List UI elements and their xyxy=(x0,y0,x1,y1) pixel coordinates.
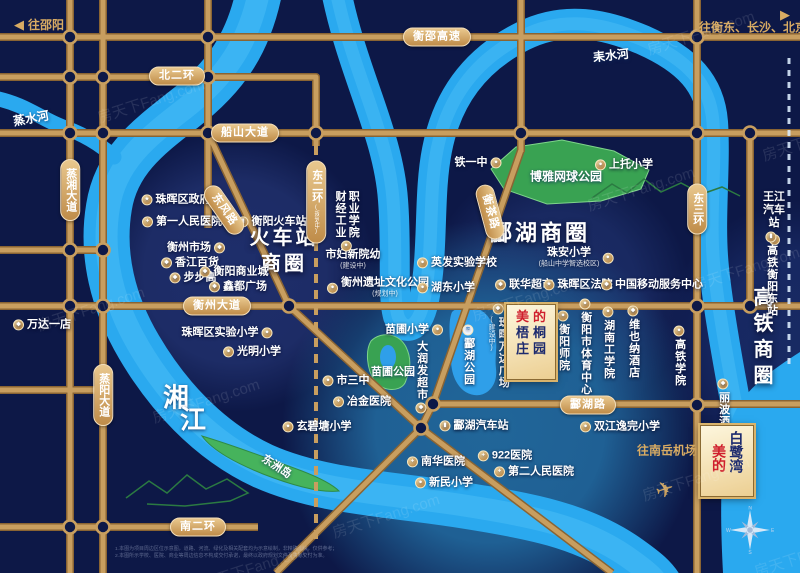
poi-label: ▮高铁衡阳东站 xyxy=(764,232,777,317)
poi-label: +南华医院 xyxy=(407,455,465,468)
road-intersection-icon xyxy=(64,300,77,313)
school-icon: ● xyxy=(417,258,428,269)
park-icon: ● xyxy=(327,282,338,293)
poi-label: ●市三中 xyxy=(323,374,370,387)
project-label-box: 美的梧桐庄园 xyxy=(506,304,556,380)
road-intersection-icon xyxy=(97,71,110,84)
school-icon: ● xyxy=(603,307,614,318)
road-intersection-icon xyxy=(97,244,110,257)
government-icon: ★ xyxy=(142,195,153,206)
road-intersection-icon xyxy=(64,71,77,84)
business-circle-title: 酃湖商圈 xyxy=(490,220,590,249)
school-icon: ● xyxy=(417,283,428,294)
office-icon: ◆ xyxy=(601,280,612,291)
poi-label: +第一人民医院 xyxy=(142,215,222,228)
stadium-icon: ● xyxy=(580,299,591,310)
school-icon: ● xyxy=(558,311,569,322)
shopping-icon: ◆ xyxy=(161,258,172,269)
hospital-icon: + xyxy=(407,457,418,468)
poi-label: ◆鑫都广场 xyxy=(209,280,267,293)
road-intersection-icon xyxy=(64,521,77,534)
poi-label: ●光明小学 xyxy=(223,345,281,358)
poi-label: 铁一中● xyxy=(455,156,502,169)
school-icon: ● xyxy=(262,328,273,339)
poi-label: ◆万达一店 xyxy=(13,318,71,331)
hospital-icon: + xyxy=(478,451,489,462)
road-label-pill: 衡邵高速 xyxy=(403,28,471,47)
poi-label: ●湖南工学院 xyxy=(601,307,614,380)
shopping-icon: ◆ xyxy=(200,267,211,278)
svg-text:S: S xyxy=(748,550,752,554)
road-intersection-icon xyxy=(202,31,215,44)
map-canvas[interactable]: 房天下Fang.com房天下Fang.com房天下Fang.com房天下Fang… xyxy=(0,0,800,573)
hotel-icon: ◆ xyxy=(718,379,729,390)
poi-label: ●玄碧塘小学 xyxy=(283,420,352,433)
direction-nanyue-airport: 往南岳机场 xyxy=(637,442,697,459)
poi-label: ●高铁学院 xyxy=(672,326,685,387)
poi-label: +922医院 xyxy=(478,449,532,462)
road-intersection-icon xyxy=(97,127,110,140)
poi-label: +第二人民医院 xyxy=(494,465,574,478)
disclaimer-line-1: 1.本图为项目周边区位示意图，道路、河流、绿化及相关配套均为示意绘制，非精确测绘… xyxy=(115,545,337,552)
compass-icon: N E S W xyxy=(726,506,774,554)
road-label-pill: 南二环 xyxy=(170,518,226,537)
school-icon: ● xyxy=(323,376,334,387)
train-station-icon: ▮ xyxy=(766,232,777,243)
poi-label: ◆中国移动服务中心 xyxy=(601,278,703,291)
shopping-icon: ◆ xyxy=(214,243,225,254)
road-intersection-icon xyxy=(744,127,757,140)
road-label-pill: 酃湖路 xyxy=(560,396,616,415)
poi-label: ●衡州遗址文化公园(规划中) xyxy=(327,277,429,300)
shopping-icon: ◆ xyxy=(209,282,220,293)
shopping-icon: ◆ xyxy=(416,403,427,414)
poi-label: 衡州市场◆ xyxy=(167,241,225,254)
school-icon: ● xyxy=(341,241,352,252)
poi-label: ≈酃湖公园 xyxy=(461,325,474,386)
poi-label: 市妇新院幼(建设中) xyxy=(326,249,381,272)
geo-feature-label: 江 xyxy=(180,400,206,437)
shopping-icon: ◆ xyxy=(495,280,506,291)
road-intersection-icon xyxy=(64,244,77,257)
poi-label: 苗圃小学● xyxy=(385,323,443,336)
school-icon: ● xyxy=(595,160,606,171)
poi-label: ●双江逸完小学 xyxy=(580,420,660,433)
poi-label: ●上托小学 xyxy=(595,158,653,171)
road-intersection-icon xyxy=(691,300,704,313)
road-label-pill: 北二环 xyxy=(149,67,205,86)
poi-label: ★珠晖区政府 xyxy=(142,193,211,206)
shopping-icon: ◆ xyxy=(492,304,503,315)
arrow-right-icon: ▶ xyxy=(780,8,790,21)
poi-label: ●新民小学 xyxy=(415,476,473,489)
direction-shaoyang: ◀ 往邵阳 xyxy=(14,16,64,33)
road-label-pill: 东三环 xyxy=(687,184,707,235)
svg-text:W: W xyxy=(726,528,731,534)
bus-station-icon: ▮ xyxy=(440,421,451,432)
poi-label: ◆衡阳商业城 xyxy=(200,265,269,278)
road-intersection-icon xyxy=(691,399,704,412)
hotel-icon: ◆ xyxy=(628,306,639,317)
geo-feature-label: 博雅网球公园 xyxy=(530,168,602,185)
poi-label: 珠晖区实验小学● xyxy=(182,326,273,339)
poi-label: ▮衡阳火车站 xyxy=(238,215,307,228)
road-label-pill: 船山大道 xyxy=(211,124,279,143)
poi-label: ●衡阳市体育中心 xyxy=(578,299,591,396)
disclaimer-line-2: 2.本图所示学校、医院、商业等周边信息不构成交付承诺，最终以政府规划文件及实际交… xyxy=(115,552,327,559)
poi-label: ▮酃湖汽车站 xyxy=(440,419,509,432)
poi-label: +冶金医院 xyxy=(333,395,391,408)
school-icon: ● xyxy=(432,325,443,336)
road-label-pill: 蒸湘大道 xyxy=(60,159,80,221)
road-intersection-icon xyxy=(97,300,110,313)
road-intersection-icon xyxy=(515,127,528,140)
school-icon: ● xyxy=(223,347,234,358)
lake-park-icon: ≈ xyxy=(463,325,474,336)
government-icon: ★ xyxy=(544,280,555,291)
road-intersection-icon xyxy=(427,398,440,411)
shopping-icon: ◆ xyxy=(13,320,24,331)
school-icon: ● xyxy=(415,478,426,489)
school-icon: ● xyxy=(283,422,294,433)
poi-label: ◆维也纳酒店 xyxy=(626,306,639,379)
school-icon: ● xyxy=(491,158,502,169)
poi-label: ●衡阳师院 xyxy=(556,311,569,372)
road-intersection-icon xyxy=(310,127,323,140)
road-intersection-icon xyxy=(283,300,296,313)
road-intersection-icon xyxy=(64,127,77,140)
road-intersection-icon xyxy=(97,521,110,534)
hospital-icon: + xyxy=(142,217,153,228)
school-icon: ● xyxy=(580,422,591,433)
road-intersection-icon xyxy=(415,422,428,435)
road-label-pill: 东二环(规划中) xyxy=(306,161,326,244)
school-icon: ● xyxy=(602,252,613,263)
road-label-pill: 衡州大道 xyxy=(183,297,251,316)
road-intersection-icon xyxy=(691,127,704,140)
poi-label: 大润发超市◆ xyxy=(414,341,427,414)
road-label-pill: 蒸阳大道 xyxy=(93,364,113,426)
svg-text:N: N xyxy=(748,506,752,512)
arrow-left-icon: ◀ xyxy=(14,18,24,31)
poi-label: 财经工业 职业学院● xyxy=(333,191,359,252)
hospital-icon: + xyxy=(333,397,344,408)
poi-label: 珠安小学(船山中学智选校区)● xyxy=(539,247,614,270)
hospital-icon: + xyxy=(494,467,505,478)
road-intersection-icon xyxy=(64,31,77,44)
shopping-icon: ◆ xyxy=(170,273,181,284)
poi-label: ●湖东小学 xyxy=(417,281,475,294)
school-icon: ● xyxy=(674,326,685,337)
poi-label: ●英发实验学校 xyxy=(417,256,497,269)
project-label-box: 美的白鹭湾 xyxy=(700,425,754,497)
geo-feature-label: 苗圃公园 xyxy=(371,363,415,379)
svg-text:E: E xyxy=(771,528,774,534)
